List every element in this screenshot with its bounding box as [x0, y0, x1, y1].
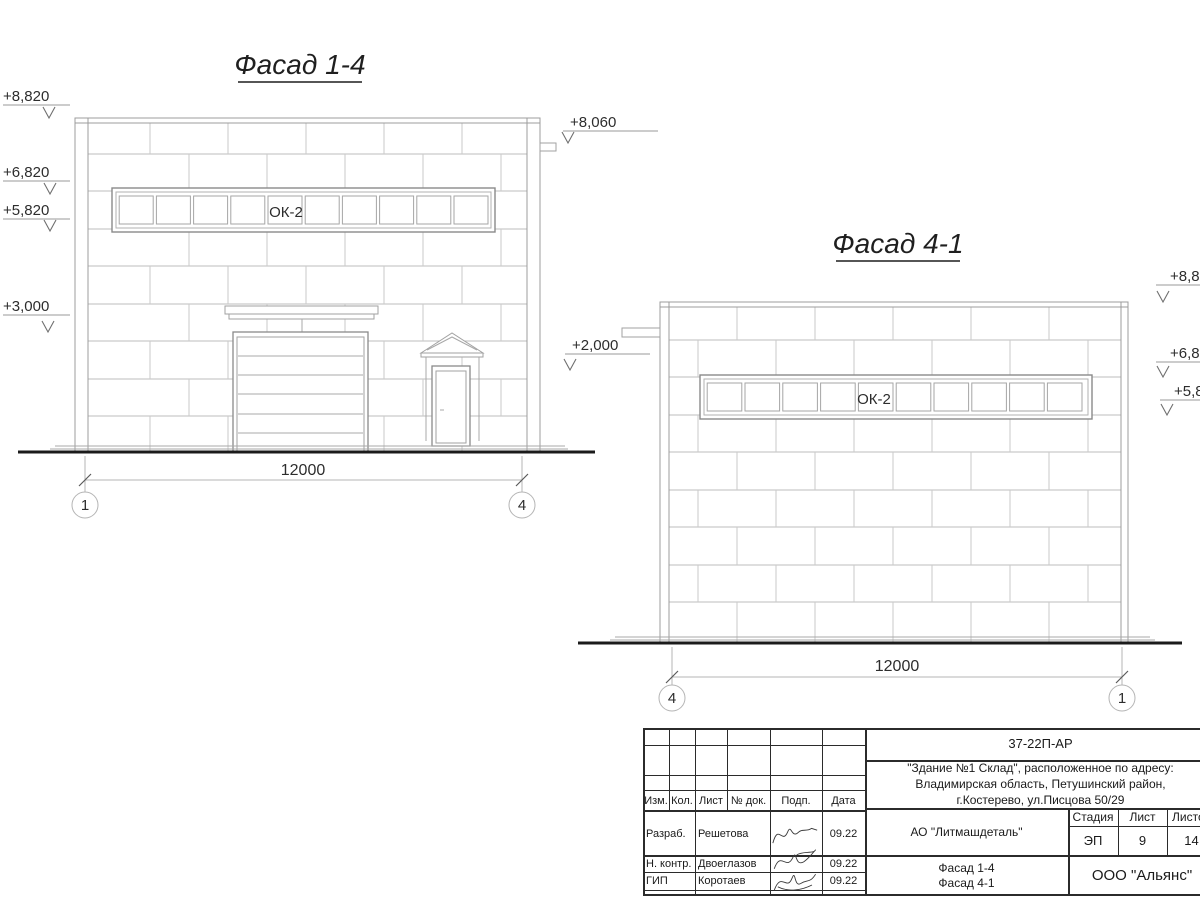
- svg-text:+5,820: +5,820: [1174, 383, 1200, 400]
- corner-columns: [660, 302, 1128, 643]
- svg-text:+8,060: +8,060: [570, 114, 616, 131]
- facade-1-4-title: Фасад 1-4: [234, 49, 365, 80]
- tb-col-podp: Подп.: [770, 791, 822, 810]
- tb-sheet-value: 9: [1118, 826, 1167, 855]
- window-pane: [821, 383, 856, 411]
- svg-text:4: 4: [668, 690, 676, 707]
- tb-sheet-title: Фасад 1-4 Фасад 4-1: [865, 855, 1068, 896]
- axis-bubble-left: 1: [72, 492, 98, 518]
- svg-text:+8,820: +8,820: [1170, 268, 1200, 285]
- tb-row1-role: Разраб.: [643, 812, 695, 855]
- tb-stage-label: Стадия: [1068, 808, 1118, 826]
- dimension-line: 12000: [79, 456, 528, 492]
- sectional-gate: [233, 332, 368, 452]
- tb-col-doc: № док.: [727, 791, 770, 810]
- tb-col-izm: Изм.: [643, 791, 669, 810]
- tb-doc-number: 37-22П-АР: [865, 728, 1200, 760]
- facade-4-1-drawing: Фасад 4-1 ОК-2 +8,820 +6,820 +5,820: [578, 228, 1200, 711]
- svg-text:+6,820: +6,820: [3, 164, 49, 181]
- svg-text:1: 1: [81, 497, 89, 514]
- dimension-line: 12000: [666, 647, 1128, 685]
- signature-razrab: [771, 816, 819, 850]
- tb-col-list: Лист: [695, 791, 727, 810]
- tb-address: "Здание №1 Склад", расположенное по адре…: [865, 760, 1200, 808]
- window-pane: [119, 196, 153, 224]
- svg-text:1: 1: [1118, 690, 1126, 707]
- window-pane: [745, 383, 780, 411]
- elevation-mark-2000: +2,000: [564, 337, 650, 370]
- title-block: Изм. Кол. Лист № док. Подп. Дата Разраб.…: [643, 728, 1200, 896]
- tb-row2-role: Н. контр.: [643, 855, 695, 872]
- window-pane: [231, 196, 265, 224]
- elevation-mark-6820: +6,820: [1156, 345, 1200, 377]
- svg-text:12000: 12000: [281, 462, 326, 479]
- window-band-ok2: ОК-2: [112, 188, 495, 232]
- panel-grid: [669, 307, 1121, 643]
- gate-canopy: [225, 306, 378, 332]
- tb-sheet-label: Лист: [1118, 808, 1167, 826]
- blind-area: [610, 637, 1155, 640]
- svg-text:+8,820: +8,820: [3, 88, 49, 105]
- window-pane: [380, 196, 414, 224]
- facade-4-1-title: Фасад 4-1: [832, 228, 963, 259]
- window-pane: [1010, 383, 1045, 411]
- scupper: [622, 328, 660, 337]
- tb-col-kol: Кол.: [669, 791, 695, 810]
- elevation-mark-8820: +8,820: [3, 88, 70, 118]
- window-pane: [783, 383, 818, 411]
- window-pane: [417, 196, 451, 224]
- tb-row2-name: Двоеглазов: [695, 855, 770, 872]
- scupper: [540, 143, 556, 151]
- window-band-label: ОК-2: [269, 204, 303, 221]
- tb-sheets-label: Листов: [1167, 808, 1200, 826]
- tb-row1-name: Решетова: [695, 812, 770, 855]
- elevation-mark-6820: +6,820: [3, 164, 70, 194]
- svg-text:+5,820: +5,820: [3, 202, 49, 219]
- tb-address-line3: г.Костерево, ул.Писцова 50/29: [957, 792, 1125, 808]
- window-band-ok2: ОК-2: [700, 375, 1092, 419]
- window-pane: [454, 196, 488, 224]
- tb-address-line1: "Здание №1 Склад", расположенное по адре…: [907, 760, 1174, 776]
- tb-row2-date: 09.22: [822, 855, 865, 872]
- elevation-mark-3000: +3,000: [3, 298, 70, 332]
- tb-row1-date: 09.22: [822, 812, 865, 855]
- window-pane: [934, 383, 969, 411]
- svg-text:4: 4: [518, 497, 526, 514]
- tb-sheet-title-line1: Фасад 1-4: [938, 861, 994, 876]
- entrance-door: [421, 333, 486, 449]
- window-pane: [305, 196, 339, 224]
- window-pane: [194, 196, 228, 224]
- facade-1-4-drawing: Фасад 1-4 ОК-2: [3, 49, 658, 518]
- elevation-mark-8060: +8,060: [562, 114, 658, 143]
- svg-text:+6,820: +6,820: [1170, 345, 1200, 362]
- svg-text:+3,000: +3,000: [3, 298, 49, 315]
- window-pane: [156, 196, 190, 224]
- tb-sheets-value: 14: [1167, 826, 1200, 855]
- window-pane: [707, 383, 742, 411]
- window-pane: [896, 383, 931, 411]
- axis-bubble-right: 1: [1109, 685, 1135, 711]
- elevation-mark-8820: +8,820: [1156, 268, 1200, 302]
- tb-organization: ООО "Альянс": [1068, 855, 1200, 896]
- signature-gip: [767, 867, 821, 894]
- axis-bubble-right: 4: [509, 492, 535, 518]
- tb-sheet-title-line2: Фасад 4-1: [938, 876, 994, 891]
- window-pane: [342, 196, 376, 224]
- window-band-label: ОК-2: [857, 391, 891, 408]
- window-pane: [972, 383, 1007, 411]
- tb-col-data: Дата: [822, 791, 865, 810]
- tb-stage-value: ЭП: [1068, 826, 1118, 855]
- building-outline: [660, 302, 1128, 643]
- tb-address-line2: Владимирская область, Петушинский район,: [915, 776, 1165, 792]
- axis-bubble-left: 4: [659, 685, 685, 711]
- svg-text:+2,000: +2,000: [572, 337, 618, 354]
- tb-row3-name: Коротаев: [695, 872, 770, 890]
- svg-text:12000: 12000: [875, 658, 920, 675]
- elevation-mark-5820: +5,820: [3, 202, 70, 231]
- tb-row3-date: 09.22: [822, 872, 865, 890]
- elevation-mark-5820: +5,820: [1160, 383, 1200, 415]
- tb-company: АО "Литмашдеталь": [865, 808, 1068, 855]
- window-pane: [1047, 383, 1082, 411]
- tb-row3-role: ГИП: [643, 872, 695, 890]
